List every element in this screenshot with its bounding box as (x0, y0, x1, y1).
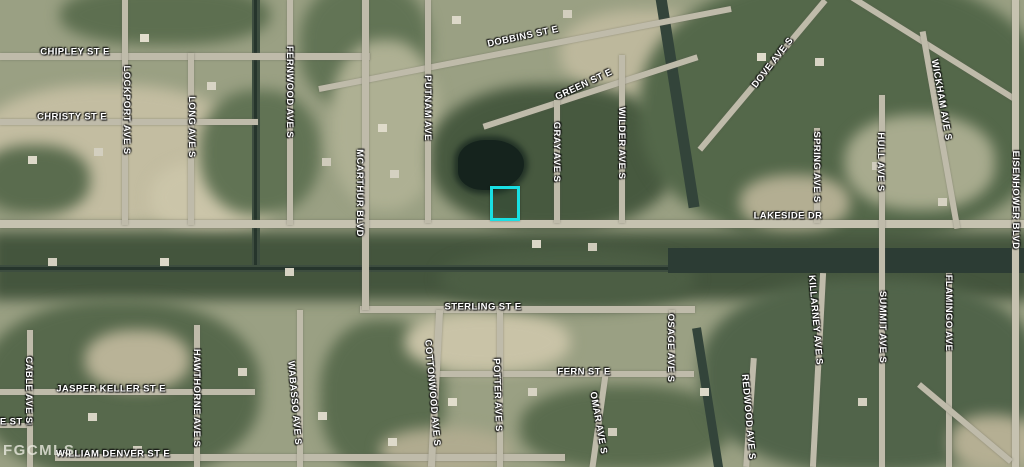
street-label-eisenhower: EISENHOWER BLVD (1010, 151, 1020, 250)
street-label-flamingo: FLAMINGO AVE (943, 275, 953, 352)
street-labels: CHIPLEY ST E CHRISTY ST E LOCKPORT AVE S… (0, 0, 1024, 467)
street-label-potter: POTTER AVE S (491, 358, 503, 432)
street-label-dobbins: DOBBINS ST E (487, 25, 560, 49)
street-label-mcarthur: MCARTHUR BLVD (354, 149, 364, 237)
street-label-hawthorne: HAWTHORNE AVE S (191, 349, 201, 447)
street-label-sterling: STERLING ST E (445, 302, 522, 312)
street-label-wabasso: WABASSO AVE S (286, 361, 303, 446)
mls-watermark: FGCMLS (3, 442, 75, 459)
street-label-lakeside: LAKESIDE DR (754, 211, 823, 221)
street-label-wickham: WICKHAM AVE S (929, 59, 953, 142)
street-label-cottonwood: COTTONWOOD AVE S (423, 339, 442, 446)
street-label-hull: HULL AVE S (875, 132, 885, 191)
street-label-long: LONG AVE S (186, 96, 196, 158)
street-label-killarney: KILLARNEY AVE S (806, 275, 823, 366)
street-label-redwood: REDWOOD AVE S (740, 374, 757, 460)
street-label-jasper-keller: JASPER KELLER ST E (56, 384, 166, 394)
street-label-spring: SPRING AVE S (811, 131, 821, 202)
street-label-chipley: CHIPLEY ST E (40, 47, 110, 57)
street-label-osage: OSAGE AVE S (665, 314, 675, 383)
street-label-fern: FERN ST E (557, 367, 610, 377)
street-label-omar: OMAR AVE S (588, 391, 608, 455)
street-label-fernwood: FERNWOOD AVE S (284, 46, 294, 138)
street-label-gray: GRAY AVE S (551, 122, 561, 183)
street-label-dove: DOVE AVE S (750, 36, 795, 90)
selected-parcel-highlight (490, 186, 520, 221)
street-label-putnam: PUTNAM AVE (422, 75, 432, 141)
street-label-wilder: WILDER AVE S (616, 107, 626, 179)
street-label-green: GREEN ST E (554, 68, 614, 103)
street-label-christy: CHRISTY ST E (37, 112, 107, 122)
street-label-summit: SUMMIT AVE S (877, 291, 887, 363)
street-label-lockport: LOCKPORT AVE S (121, 66, 131, 155)
satellite-map[interactable]: CHIPLEY ST E CHRISTY ST E LOCKPORT AVE S… (0, 0, 1024, 467)
street-label-cable: CABLE AVE S (23, 356, 33, 423)
